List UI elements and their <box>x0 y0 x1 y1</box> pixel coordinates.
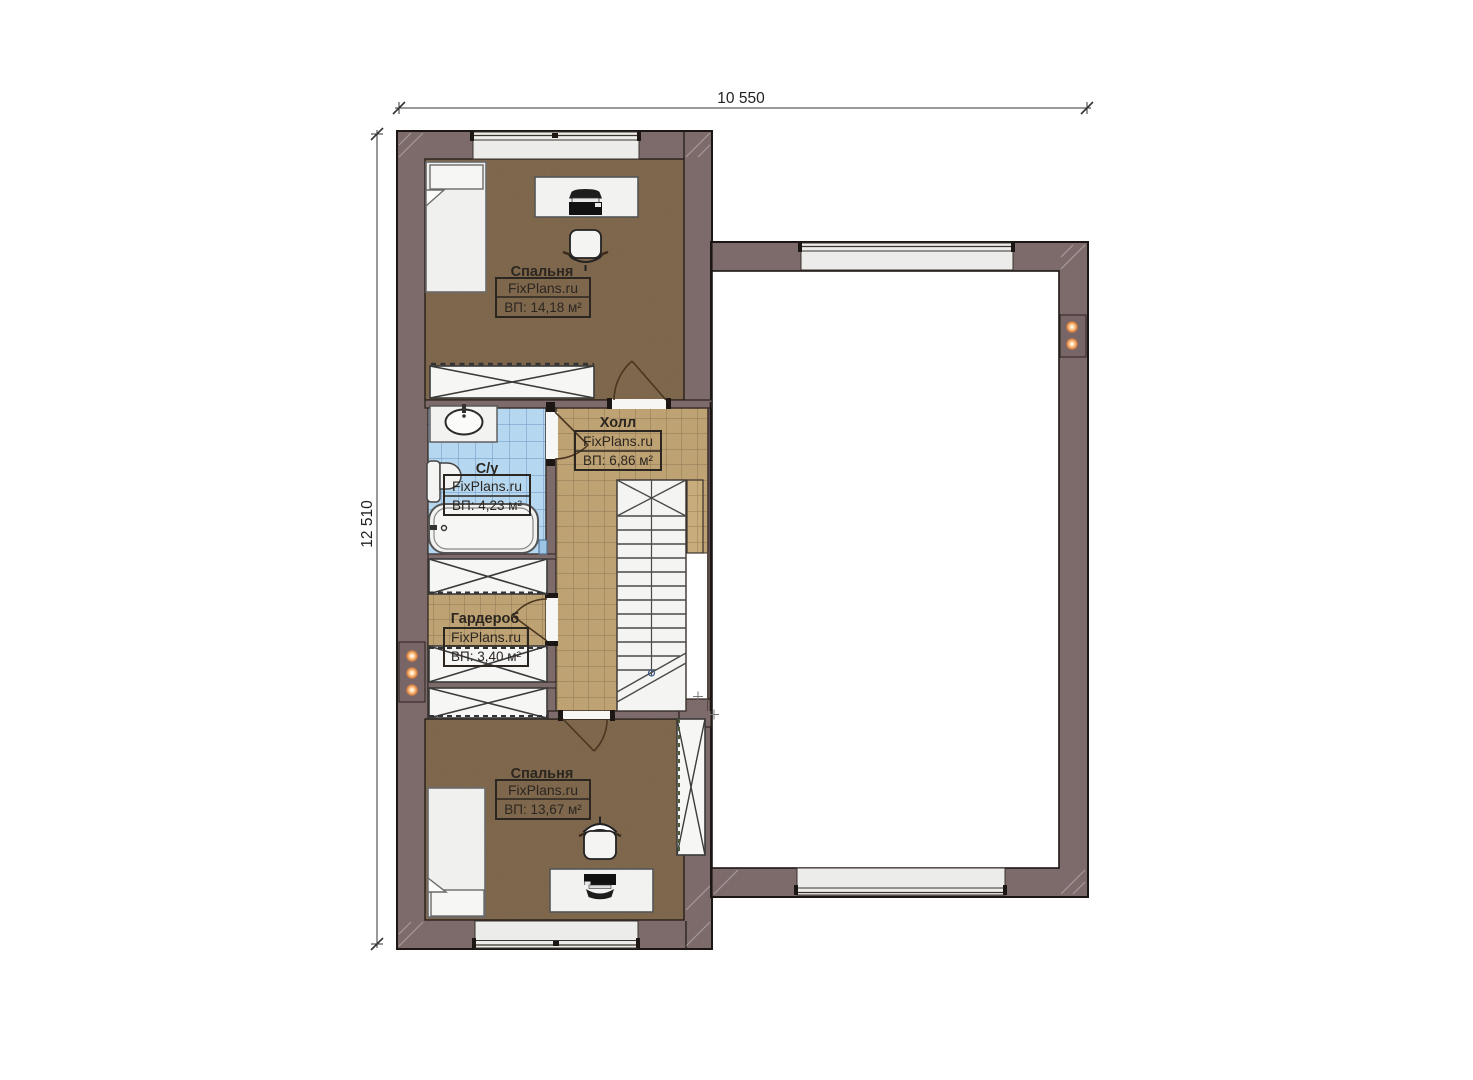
svg-text:FixPlans.ru: FixPlans.ru <box>508 280 578 296</box>
svg-text:FixPlans.ru: FixPlans.ru <box>451 629 521 645</box>
svg-text:ВП: 3,40 м²: ВП: 3,40 м² <box>451 649 522 664</box>
svg-text:FixPlans.ru: FixPlans.ru <box>583 433 653 449</box>
svg-text:12 510: 12 510 <box>359 500 376 548</box>
svg-text:FixPlans.ru: FixPlans.ru <box>452 478 522 494</box>
svg-text:10 550: 10 550 <box>717 90 765 107</box>
svg-text:FixPlans.ru: FixPlans.ru <box>508 782 578 798</box>
svg-text:Гардероб: Гардероб <box>451 611 520 627</box>
svg-text:Холл: Холл <box>600 415 636 431</box>
svg-text:ВП: 4,23 м²: ВП: 4,23 м² <box>452 498 523 513</box>
svg-text:ВП: 13,67 м²: ВП: 13,67 м² <box>504 802 582 817</box>
svg-text:ВП: 14,18 м²: ВП: 14,18 м² <box>504 300 582 315</box>
svg-text:ВП: 6,86 м²: ВП: 6,86 м² <box>583 453 654 468</box>
